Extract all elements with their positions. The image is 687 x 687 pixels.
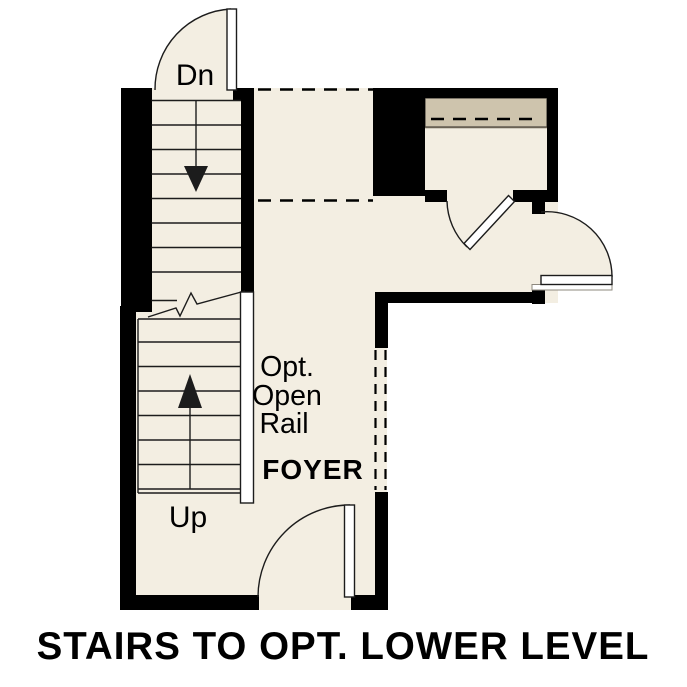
shelf-band [425,98,547,127]
wall-stair-right [241,88,254,292]
label-stairs-down: Dn [176,59,214,92]
wall-left-upper [121,88,152,312]
room-label-foyer: FOYER [262,454,363,485]
entry-door-leaf [541,276,612,285]
wall-foyer-top-right [375,292,543,303]
top-door-leaf [227,9,237,90]
wall-closet-left-chase [373,88,425,196]
label-rail-note-line3: Rail [259,408,308,440]
wall-left-lower [120,306,136,610]
wall-closet-right [547,88,558,192]
wall-closet-left-stub [425,190,447,202]
label-rail-note-line1: Opt. [260,351,314,383]
floor-plan-svg: Dn Up Opt. Open Rail FOYER STAIRS TO OPT… [0,0,687,687]
closet-shelf [425,98,547,128]
plan-caption: STAIRS TO OPT. LOWER LEVEL [37,625,650,668]
floor-plan-page: Dn Up Opt. Open Rail FOYER STAIRS TO OPT… [0,0,687,687]
entry-door-threshold [532,285,612,291]
label-stairs-up: Up [169,501,207,534]
wall-foyer-right-lower-stub [375,492,388,610]
bottom-door-leaf [345,505,355,597]
wall-closet-top [373,88,558,98]
entry-door-swing-area [532,212,612,277]
wall-bottom-left [120,595,259,610]
